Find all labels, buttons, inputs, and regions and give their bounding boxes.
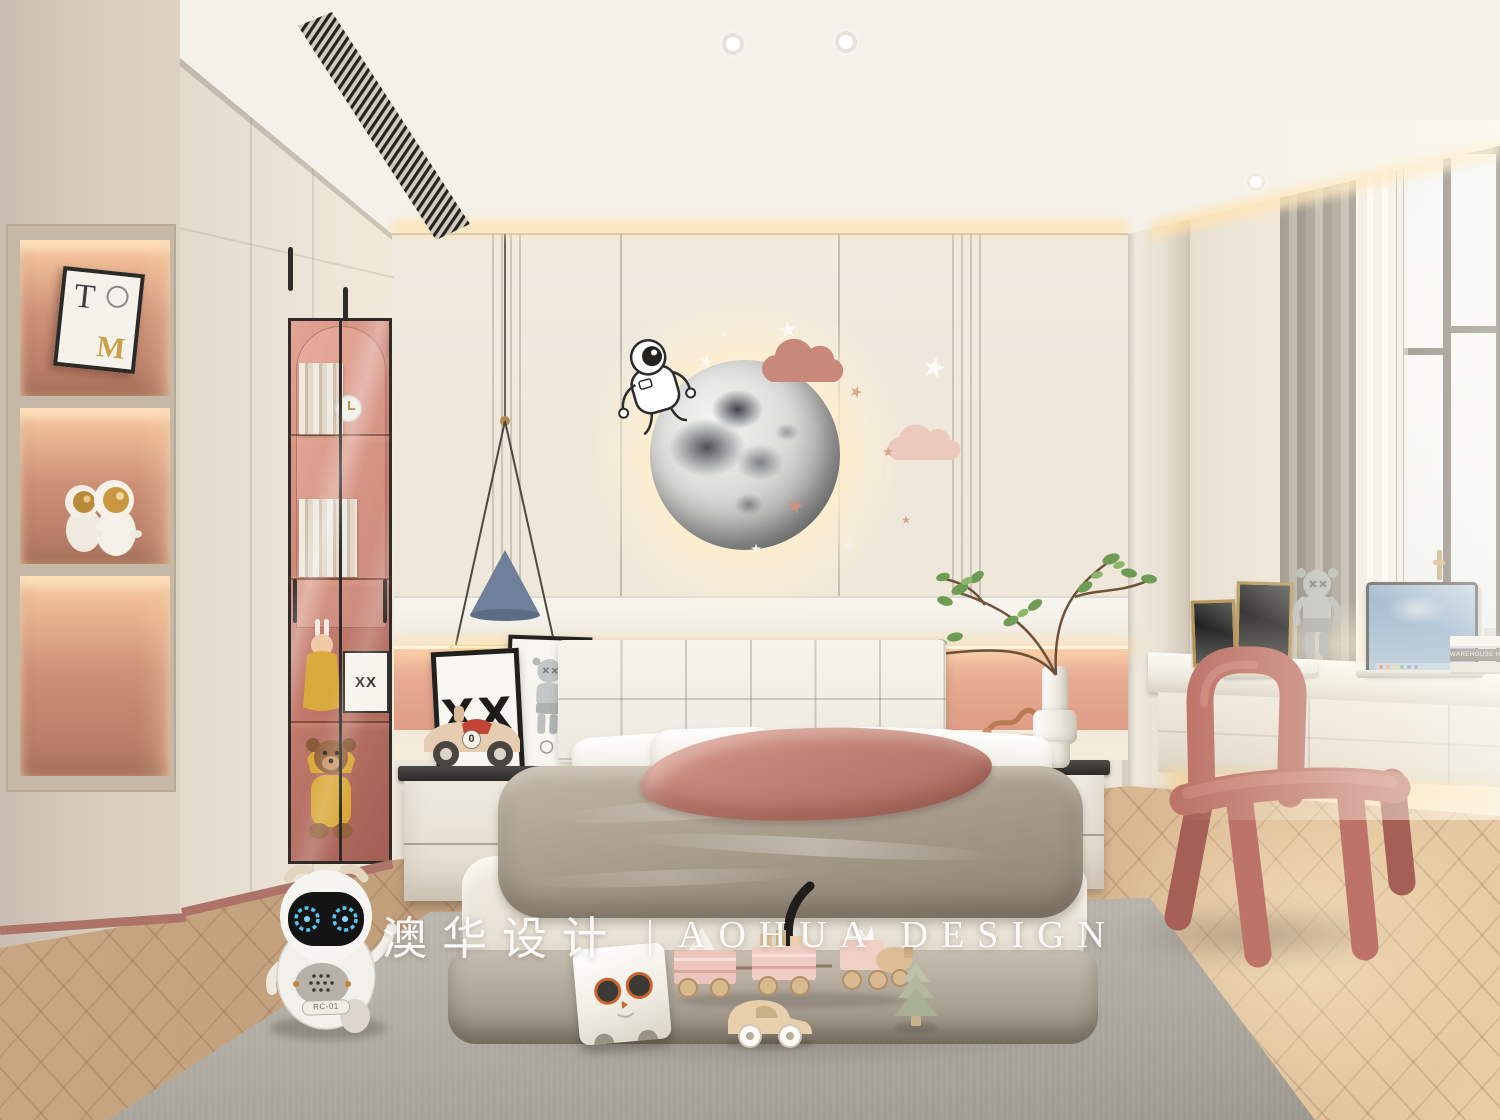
- glass-reflection: [291, 321, 389, 861]
- kids-bedroom-render: WAREHOUSE HOME: [0, 0, 1500, 1120]
- cloud-dark: [762, 339, 843, 382]
- glass-cabinet: XX: [288, 318, 392, 864]
- ceiling: [0, 0, 1500, 300]
- spotlight: [830, 26, 862, 58]
- spotlight: [717, 28, 749, 60]
- rose-tube-chair: [1130, 635, 1420, 965]
- watermark-english: AOHUA DESIGN: [678, 913, 1118, 957]
- wooden-toy-car: [722, 992, 818, 1052]
- niche-shelf: [20, 576, 170, 776]
- cloud-light: [888, 424, 961, 460]
- watermark: 澳华设计 | AOHUA DESIGN: [382, 902, 1118, 967]
- robot-badge: RC-01: [302, 999, 350, 1016]
- wooden-toy-tree: [890, 960, 942, 1034]
- robot-badge-label: RC-01: [313, 1002, 339, 1012]
- toy-car-number: 0: [462, 730, 481, 749]
- spotlight: [1242, 168, 1270, 196]
- niche-art-letter-m: M: [95, 330, 127, 367]
- astronaut-figurines: [50, 468, 150, 558]
- watermark-separator: |: [646, 911, 654, 958]
- watermark-chinese: 澳华设计: [382, 902, 622, 967]
